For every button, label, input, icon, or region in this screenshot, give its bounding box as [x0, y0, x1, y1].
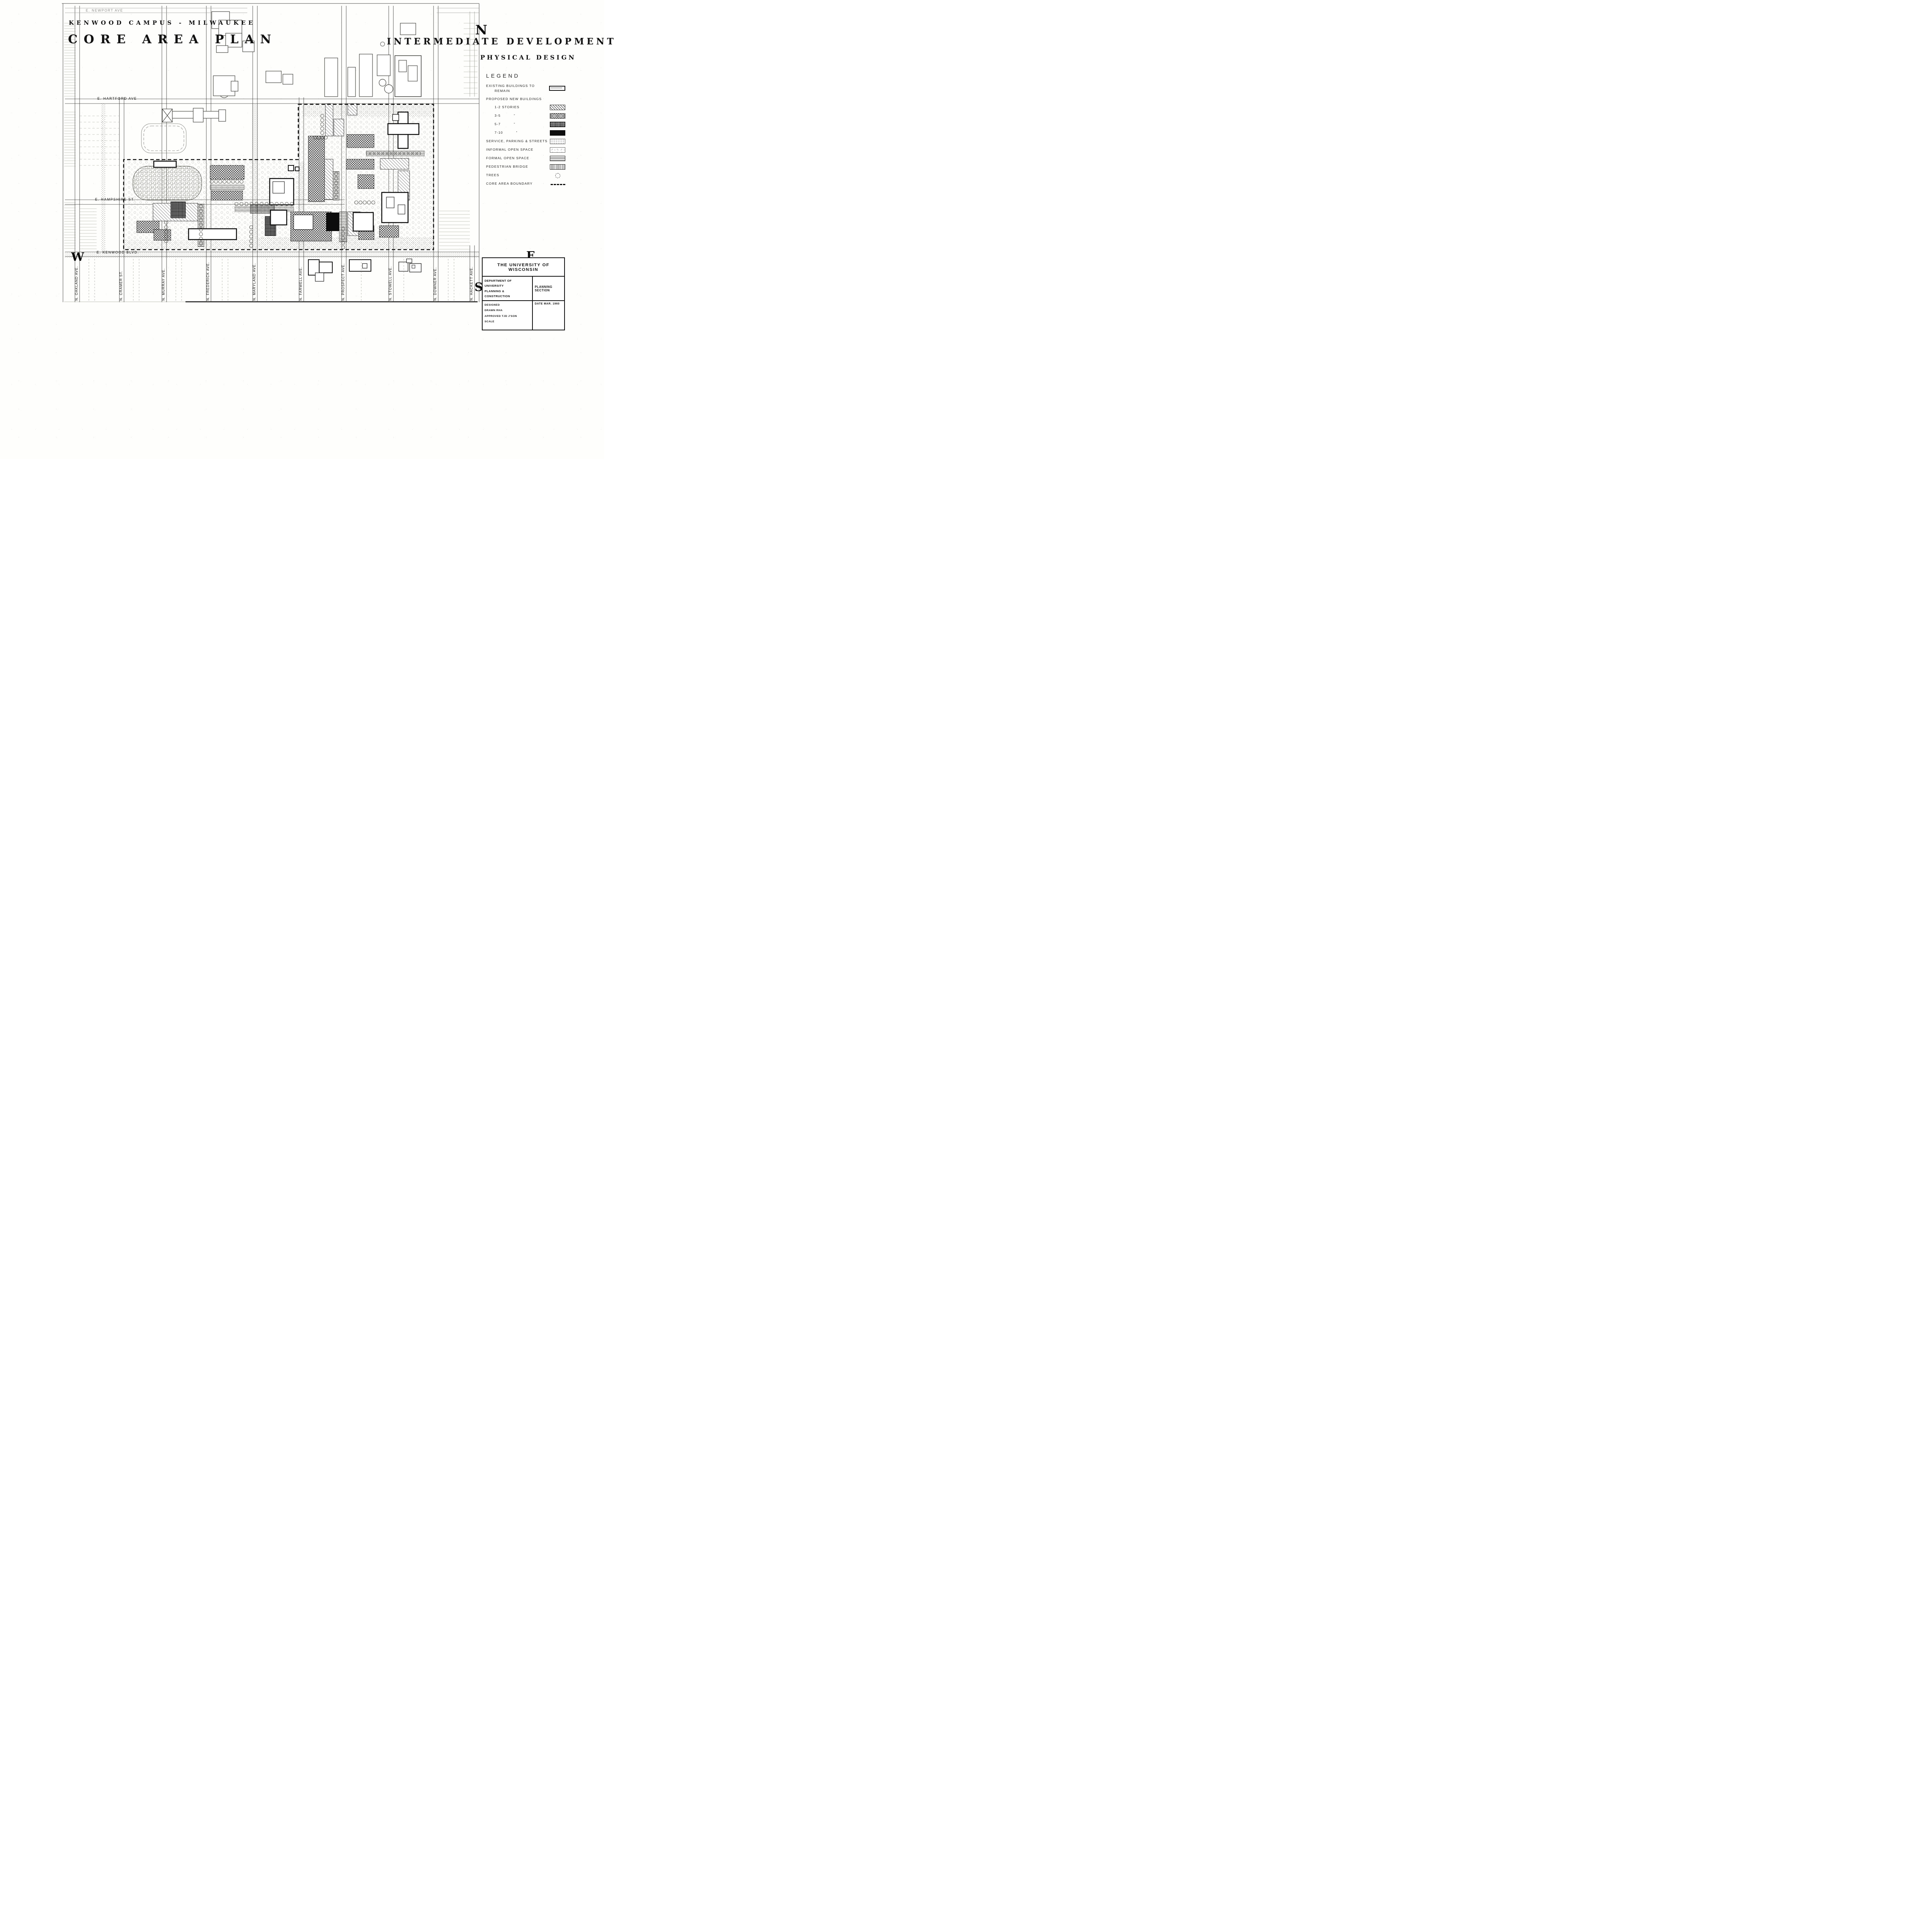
street-label-vertical: N. MARYLAND AVE. [252, 263, 256, 301]
legend-swatch-hatch710 [550, 130, 565, 136]
scanned-campus-plan-sheet: { "titles": { "campus": "KENWOOD CAMPUS … [0, 0, 604, 459]
legend-item: FORMAL OPEN SPACE [486, 156, 565, 161]
legend-item-label: FORMAL OPEN SPACE [486, 156, 548, 161]
legend-item: 7-10" [486, 130, 565, 136]
circle-mark-icon [380, 42, 385, 46]
street-label-horizontal: E. NEWPORT AVE [86, 9, 123, 12]
legend-item-label: PROPOSED NEW BUILDINGS [486, 97, 549, 102]
legend: LEGEND EXISTING BUILDINGS TOREMAINPROPOS… [486, 73, 565, 189]
legend-swatch-service [550, 139, 565, 144]
legend-item: PEDESTRIAN BRIDGE [486, 164, 565, 170]
legend-item: CORE AREA BOUNDARY [486, 181, 565, 186]
legend-swatch-trees [551, 173, 565, 178]
legend-ditto-mark: " [514, 114, 515, 118]
legend-item-label: 5-7" [495, 122, 548, 127]
title-block-approved: APPROVED TJD J'SON [485, 314, 530, 319]
legend-item: 3-5" [486, 113, 565, 119]
street-label-vertical: N. OAKLAND AVE. [75, 266, 78, 301]
legend-item: 1-2 STORIES [486, 105, 565, 110]
title-block-scale: SCALE [485, 319, 530, 325]
proposed-buildings-7-10-story [326, 213, 339, 231]
title-block-org: THE UNIVERSITY OF WISCONSIN [483, 258, 564, 277]
legend-item: TREES [486, 173, 565, 178]
legend-item: 5-7" [486, 122, 565, 127]
legend-item: PROPOSED NEW BUILDINGS [486, 97, 565, 102]
legend-swatch-formal [550, 156, 565, 161]
legend-swatch-boundary [551, 184, 565, 185]
legend-swatch-hatch35 [550, 113, 565, 119]
title-intermediate-development: INTERMEDIATE DEVELOPMENT [387, 36, 616, 47]
title-block-section: PLANNING SECTION [535, 278, 562, 299]
street-label-vertical: N. HACKETT AVE. [469, 267, 473, 301]
legend-item-label: 7-10" [495, 130, 548, 135]
south-blocks [308, 259, 421, 281]
street-label-horizontal: E. HARTFORD AVE [97, 97, 137, 100]
legend-swatch-bridge [550, 164, 565, 170]
street-label-horizontal: E. KENWOOD BLVD. [97, 250, 139, 254]
legend-ditto-mark: " [514, 122, 515, 127]
legend-swatch-informal [550, 147, 565, 153]
legend-swatch-hatch57 [550, 122, 565, 127]
street-label-vertical: N. PROSPECT AVE. [341, 263, 345, 301]
legend-item-label: EXISTING BUILDINGS TOREMAIN [486, 83, 548, 94]
legend-item-label: CORE AREA BOUNDARY [486, 181, 549, 186]
title-block-designed: DESIGNED [485, 303, 530, 308]
street-label-vertical: N. FREDERICK AVE. [206, 262, 210, 301]
legend-ditto-mark: " [516, 131, 518, 135]
legend-items: EXISTING BUILDINGS TOREMAINPROPOSED NEW … [486, 83, 565, 186]
title-block-date: DATE MAR. 1960 [535, 303, 562, 305]
legend-item-label: INFORMAL OPEN SPACE [486, 147, 548, 152]
title-physical-design: PHYSICAL DESIGN [480, 54, 576, 61]
legend-item-label: PEDESTRIAN BRIDGE [486, 164, 548, 169]
campus-plan-map [0, 0, 604, 459]
title-block: THE UNIVERSITY OF WISCONSIN DEPARTMENT O… [482, 257, 565, 330]
legend-item-label-line2: REMAIN [495, 88, 548, 94]
compass-north-letter: N [475, 22, 487, 38]
street-label-vertical: N. STOWELL AVE. [388, 266, 392, 301]
street-label-vertical: N. MURRAY AVE. [162, 268, 165, 301]
page-title: CORE AREA PLAN [68, 32, 277, 46]
legend-item: INFORMAL OPEN SPACE [486, 147, 565, 153]
title-block-dept-line1: DEPARTMENT OF UNIVERSITY [485, 278, 530, 289]
legend-item: EXISTING BUILDINGS TOREMAIN [486, 83, 565, 94]
tree-filled-oval [133, 166, 202, 200]
street-label-vertical: N. FARWELL AVE. [299, 267, 303, 301]
title-campus: KENWOOD CAMPUS - MILWAUKEE [69, 19, 255, 26]
legend-item-label: 3-5" [495, 113, 548, 118]
legend-heading: LEGEND [486, 73, 565, 79]
title-block-drawn: DRAWN RHA [485, 308, 530, 313]
street-label-vertical: N. CRAMER ST. [119, 270, 123, 301]
legend-item-label: TREES [486, 173, 549, 178]
legend-swatch-existing [549, 86, 565, 91]
street-label-vertical: N. DOWNER AVE. [433, 267, 437, 301]
title-block-dept-line2: PLANNING & CONSTRUCTION [485, 289, 530, 299]
legend-item-label: 1-2 STORIES [495, 105, 548, 110]
street-label-horizontal: E. HAMPSHIRE ST. [95, 197, 135, 201]
compass-west-letter: W [71, 250, 84, 264]
legend-item-label: SERVICE, PARKING & STREETS [486, 139, 548, 144]
legend-item: SERVICE, PARKING & STREETS [486, 139, 565, 144]
legend-swatch-hatch12 [550, 105, 565, 110]
